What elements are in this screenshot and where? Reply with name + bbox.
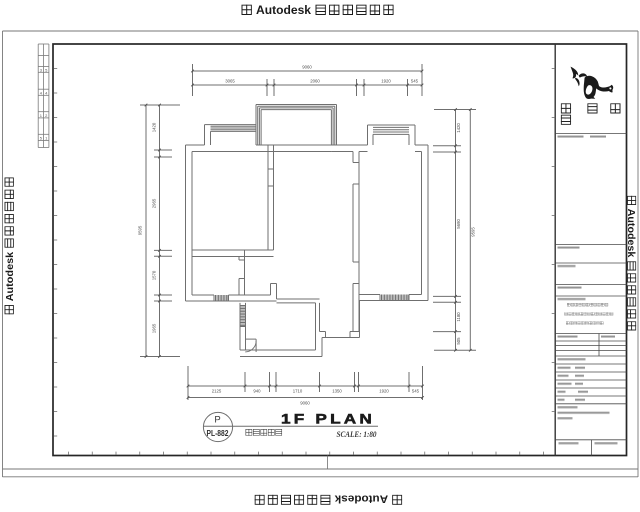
- svg-text:1420: 1420: [456, 123, 461, 133]
- svg-text:4: 4: [40, 91, 43, 96]
- svg-text:2: 2: [45, 113, 48, 118]
- svg-text:1420: 1420: [152, 122, 157, 132]
- svg-text:9060: 9060: [302, 65, 312, 70]
- svg-text:1920: 1920: [381, 79, 391, 84]
- svg-text:Autodesk: Autodesk: [334, 493, 388, 505]
- svg-text:1: 1: [45, 136, 48, 141]
- svg-text:1965: 1965: [152, 323, 157, 333]
- svg-text:5: 5: [45, 68, 48, 73]
- svg-text:1350: 1350: [332, 389, 342, 394]
- svg-text:545: 545: [411, 79, 419, 84]
- svg-text:3: 3: [40, 68, 43, 73]
- svg-text:9060: 9060: [300, 401, 310, 406]
- svg-text:545: 545: [412, 389, 420, 394]
- svg-text:PL-882: PL-882: [207, 429, 229, 438]
- svg-text:SCALE: 1:80: SCALE: 1:80: [337, 429, 378, 439]
- svg-text:940: 940: [253, 389, 261, 394]
- svg-text:1180: 1180: [456, 312, 461, 322]
- svg-text:1: 1: [40, 113, 43, 118]
- svg-text:3065: 3065: [225, 79, 235, 84]
- svg-text:2060: 2060: [310, 79, 320, 84]
- svg-text:4: 4: [45, 91, 48, 96]
- svg-text:Autodesk: Autodesk: [5, 252, 16, 302]
- svg-text:P: P: [214, 415, 220, 426]
- svg-text:Autodesk: Autodesk: [256, 4, 312, 17]
- svg-text:2125: 2125: [212, 389, 222, 394]
- svg-text:2965: 2965: [152, 198, 157, 208]
- svg-text:5690: 5690: [456, 219, 461, 229]
- svg-text:5: 5: [40, 136, 43, 141]
- svg-text:1710: 1710: [293, 389, 303, 394]
- svg-text:9595: 9595: [138, 225, 143, 235]
- svg-text:9595: 9595: [471, 227, 476, 237]
- svg-text:505: 505: [456, 337, 461, 345]
- svg-text:1920: 1920: [379, 389, 389, 394]
- svg-text:1570: 1570: [152, 270, 157, 280]
- svg-text:1F PLAN: 1F PLAN: [281, 411, 375, 427]
